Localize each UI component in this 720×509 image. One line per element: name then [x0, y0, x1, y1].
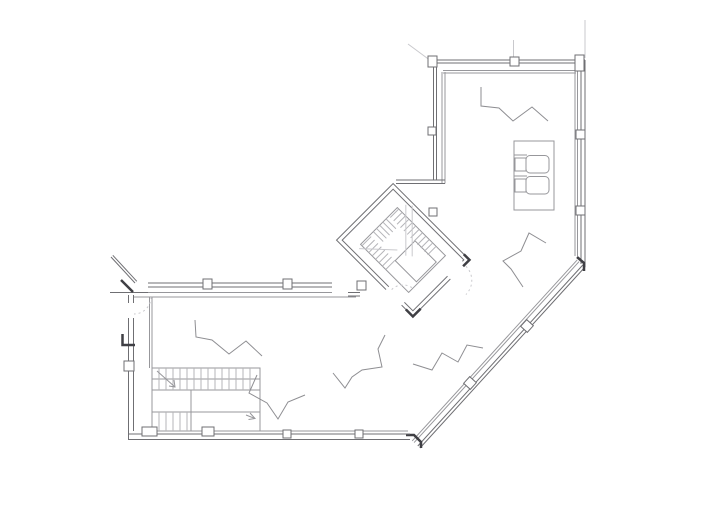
- column: [203, 279, 212, 289]
- column: [510, 57, 519, 66]
- column: [576, 130, 585, 139]
- column: [429, 208, 437, 216]
- core-wall-outer: [337, 184, 470, 317]
- column: [283, 430, 291, 438]
- column: [202, 427, 214, 436]
- column: [575, 55, 584, 71]
- columns: [124, 55, 585, 438]
- toilet-bowl: [526, 156, 549, 174]
- column: [283, 279, 292, 289]
- tread-line: [421, 240, 429, 248]
- column: [576, 206, 585, 215]
- wall-stub-diagonal: [121, 280, 133, 292]
- sketch-marks: [195, 87, 548, 419]
- core-connector-walls: [396, 63, 445, 184]
- tread-line: [397, 216, 405, 224]
- construction-lines: [408, 20, 585, 61]
- tread-line: [414, 233, 422, 241]
- tread-line: [404, 223, 412, 231]
- core-door-gap2: [385, 286, 405, 306]
- tread-line: [400, 219, 408, 227]
- secondary-stair: [152, 368, 260, 431]
- sketch-squiggle: [503, 233, 546, 287]
- column: [355, 430, 363, 438]
- stair-outline: [152, 368, 260, 431]
- wall-diagonal-outer2: [418, 265, 583, 446]
- tread-line: [424, 243, 432, 251]
- column: [124, 361, 134, 371]
- toilet-bowl2: [526, 177, 549, 195]
- wall-diagonal-outer: [420, 267, 585, 448]
- sketch-squiggle: [333, 335, 385, 388]
- toilet-tank: [515, 158, 526, 171]
- tread-line: [394, 212, 402, 220]
- core-wall-inner: [342, 189, 464, 311]
- wall-diagonal-inner: [414, 262, 579, 443]
- floor-plan-page: [0, 0, 720, 509]
- sketch-squiggle: [413, 345, 483, 370]
- column-rotated: [464, 377, 477, 390]
- tread-line: [417, 236, 425, 244]
- sketch-squiggle: [481, 87, 548, 121]
- toilet-block: [514, 141, 554, 210]
- core-corner-piece2: [406, 302, 421, 317]
- toilet-tank2: [515, 179, 526, 192]
- core-break-line: [380, 205, 431, 256]
- tread-line: [407, 226, 415, 234]
- sketch-squiggle: [195, 320, 262, 356]
- column: [428, 56, 437, 67]
- floor-plan-drawing: [0, 0, 720, 509]
- tread-line: [428, 246, 436, 254]
- door-swing-arc: [134, 297, 151, 314]
- column: [428, 127, 436, 135]
- column: [142, 427, 157, 436]
- northeast-wing-walls: [406, 60, 585, 448]
- stair-core: [336, 184, 485, 333]
- core-treads-winder: [373, 219, 396, 242]
- core-door-gap: [447, 261, 467, 281]
- core-lift-shaft: [395, 241, 436, 282]
- column: [357, 281, 366, 290]
- canopy-diagonal2: [113, 255, 137, 281]
- stair-treads-lower: [159, 412, 187, 431]
- canopy-diagonal: [111, 257, 135, 283]
